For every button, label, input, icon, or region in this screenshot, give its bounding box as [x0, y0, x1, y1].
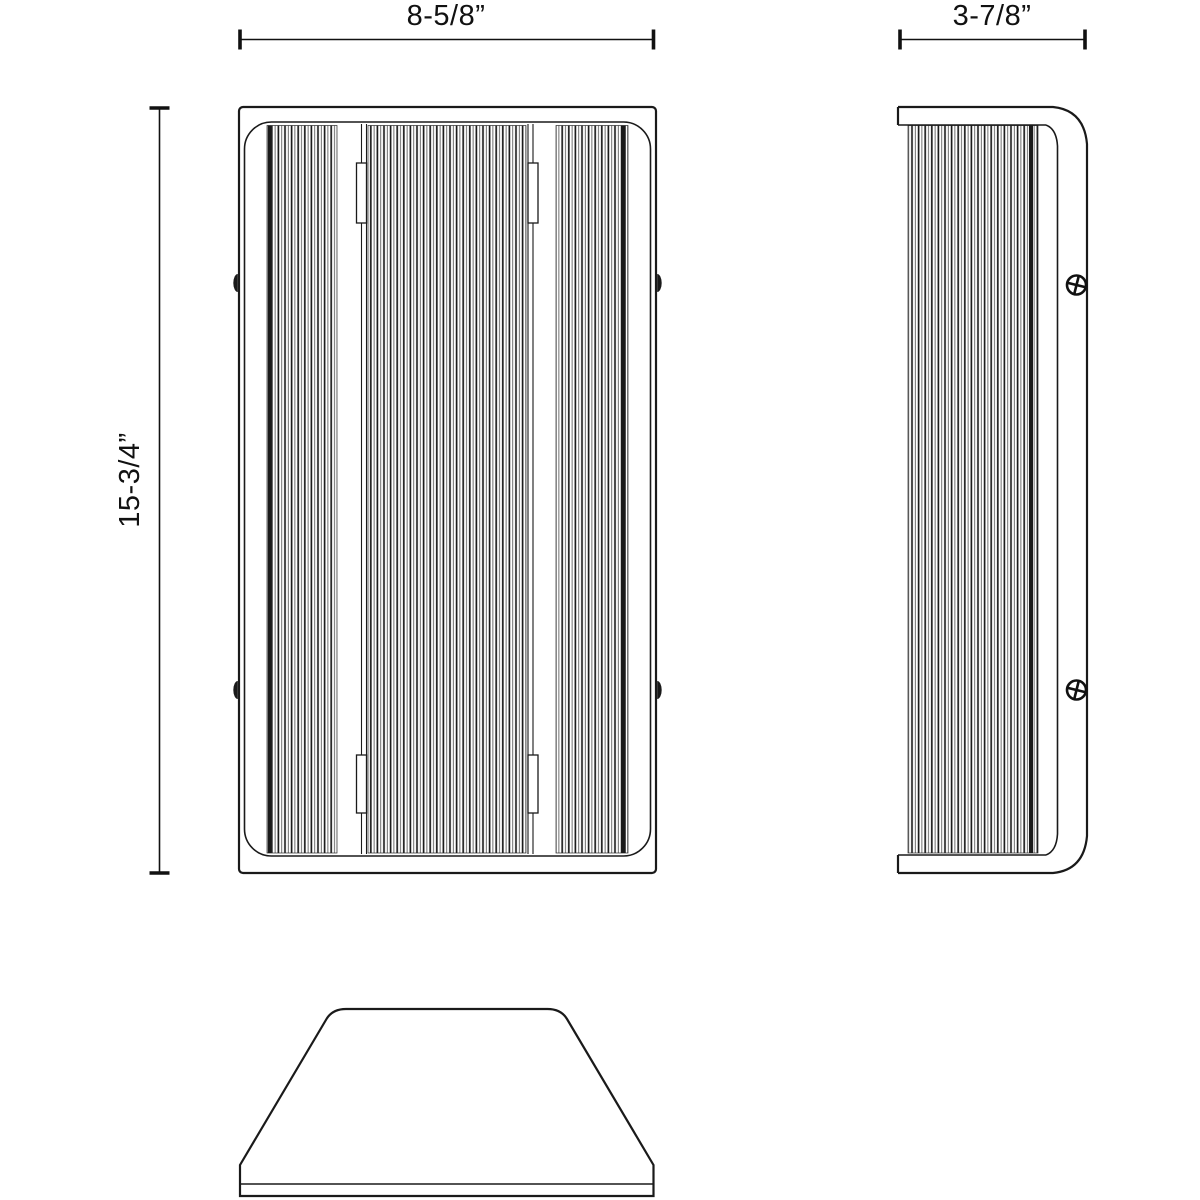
front-clip-bottom-right: [528, 755, 538, 813]
dimension-label-side-depth: 3-7/8”: [953, 0, 1032, 32]
front-rib-section-center: [368, 126, 526, 854]
front-edge-bump: [657, 681, 662, 699]
dimension-front-height: 15-3/4”: [114, 108, 170, 873]
dimension-label-front-width: 8-5/8”: [407, 0, 486, 32]
front-edge-bump: [233, 274, 238, 292]
bottom-profile-outline: [240, 1009, 654, 1196]
front-view: [233, 107, 661, 873]
side-view: [898, 107, 1088, 873]
front-rib-section-right: [556, 126, 628, 854]
bottom-view: [240, 1009, 654, 1196]
front-edge-bump: [233, 681, 238, 699]
front-clip-top-right: [528, 163, 538, 223]
dimension-side-depth: 3-7/8”: [900, 0, 1085, 50]
side-rib-panel: [908, 126, 1038, 854]
technical-drawing-canvas: 8-5/8” 3-7/8” 15-3/4”: [0, 0, 1200, 1200]
front-edge-bump: [657, 274, 662, 292]
dimension-front-width: 8-5/8”: [240, 0, 654, 50]
front-rib-section-left: [267, 126, 337, 854]
front-clip-bottom-left: [357, 755, 367, 813]
front-clip-top-left: [357, 163, 367, 223]
dimension-label-front-height: 15-3/4”: [114, 432, 146, 527]
dimension-drawing-page: 8-5/8” 3-7/8” 15-3/4”: [0, 0, 1200, 1200]
